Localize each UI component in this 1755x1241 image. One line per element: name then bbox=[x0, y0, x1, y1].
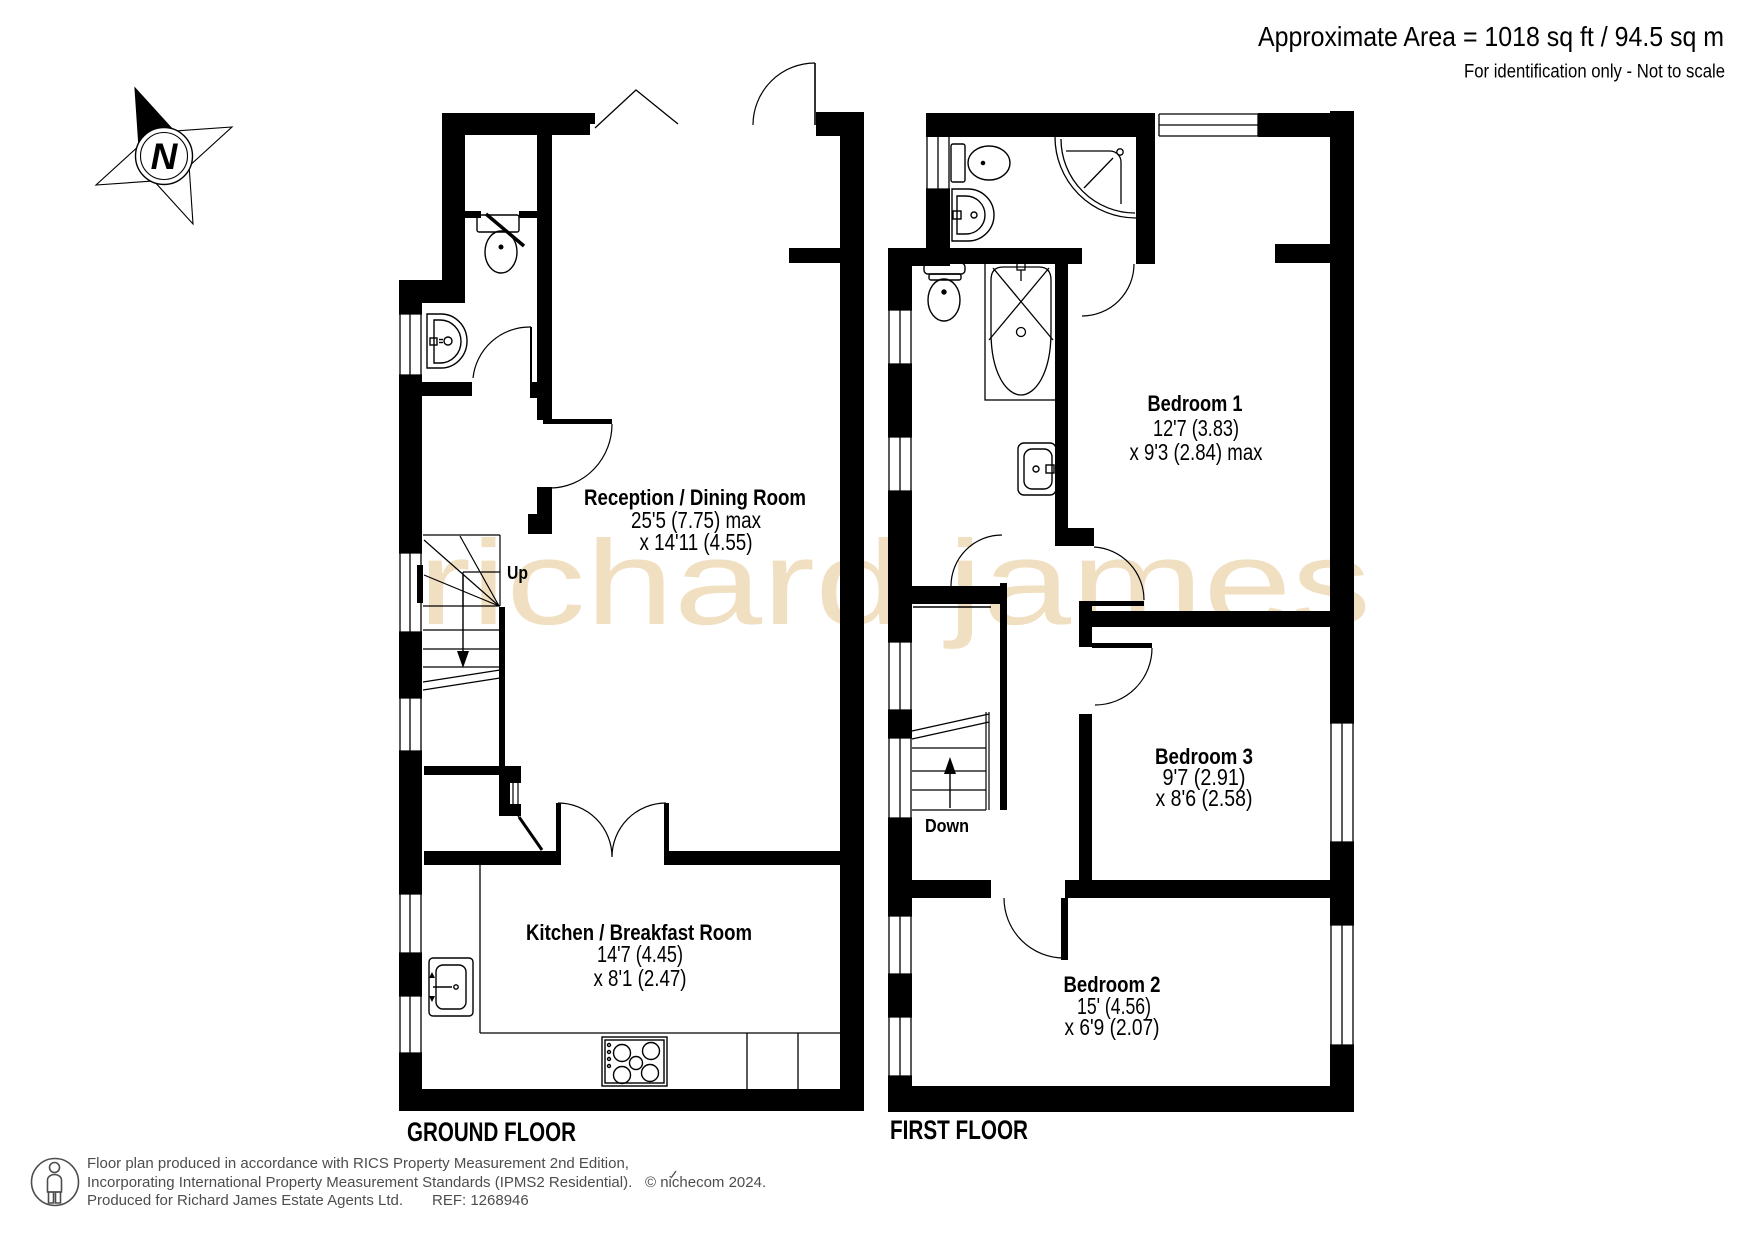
svg-text:N: N bbox=[151, 136, 179, 177]
svg-text:14'7 (4.45): 14'7 (4.45) bbox=[597, 941, 683, 967]
svg-text:x 9'3 (2.84) max: x 9'3 (2.84) max bbox=[1130, 439, 1263, 465]
svg-text:Down: Down bbox=[925, 815, 969, 836]
svg-text:12'7 (3.83): 12'7 (3.83) bbox=[1153, 415, 1239, 441]
svg-text:Floor plan produced in accorda: Floor plan produced in accordance with R… bbox=[87, 1155, 629, 1172]
svg-text:x 14'11 (4.55): x 14'11 (4.55) bbox=[640, 529, 753, 555]
svg-text:REF: 1268946: REF: 1268946 bbox=[432, 1192, 529, 1209]
svg-text:For identification only - Not: For identification only - Not to scale bbox=[1464, 62, 1725, 83]
svg-text:GROUND FLOOR: GROUND FLOOR bbox=[407, 1117, 576, 1147]
svg-text:x 6'9 (2.07): x 6'9 (2.07) bbox=[1065, 1014, 1160, 1040]
svg-text:FIRST FLOOR: FIRST FLOOR bbox=[890, 1115, 1028, 1145]
svg-text:Produced for Richard James Est: Produced for Richard James Estate Agents… bbox=[87, 1192, 403, 1209]
svg-text:Approximate Area = 1018 sq ft: Approximate Area = 1018 sq ft / 94.5 sq … bbox=[1258, 21, 1724, 52]
svg-text:x 8'1 (2.47): x 8'1 (2.47) bbox=[594, 965, 687, 991]
svg-text:x 8'6 (2.58): x 8'6 (2.58) bbox=[1156, 785, 1253, 811]
svg-text:Bedroom 1: Bedroom 1 bbox=[1148, 391, 1243, 416]
svg-text:Incorporating International Pr: Incorporating International Property Mea… bbox=[87, 1174, 632, 1191]
svg-text:Up: Up bbox=[507, 562, 528, 583]
svg-text:© nichecom 2024.: © nichecom 2024. bbox=[645, 1174, 766, 1191]
